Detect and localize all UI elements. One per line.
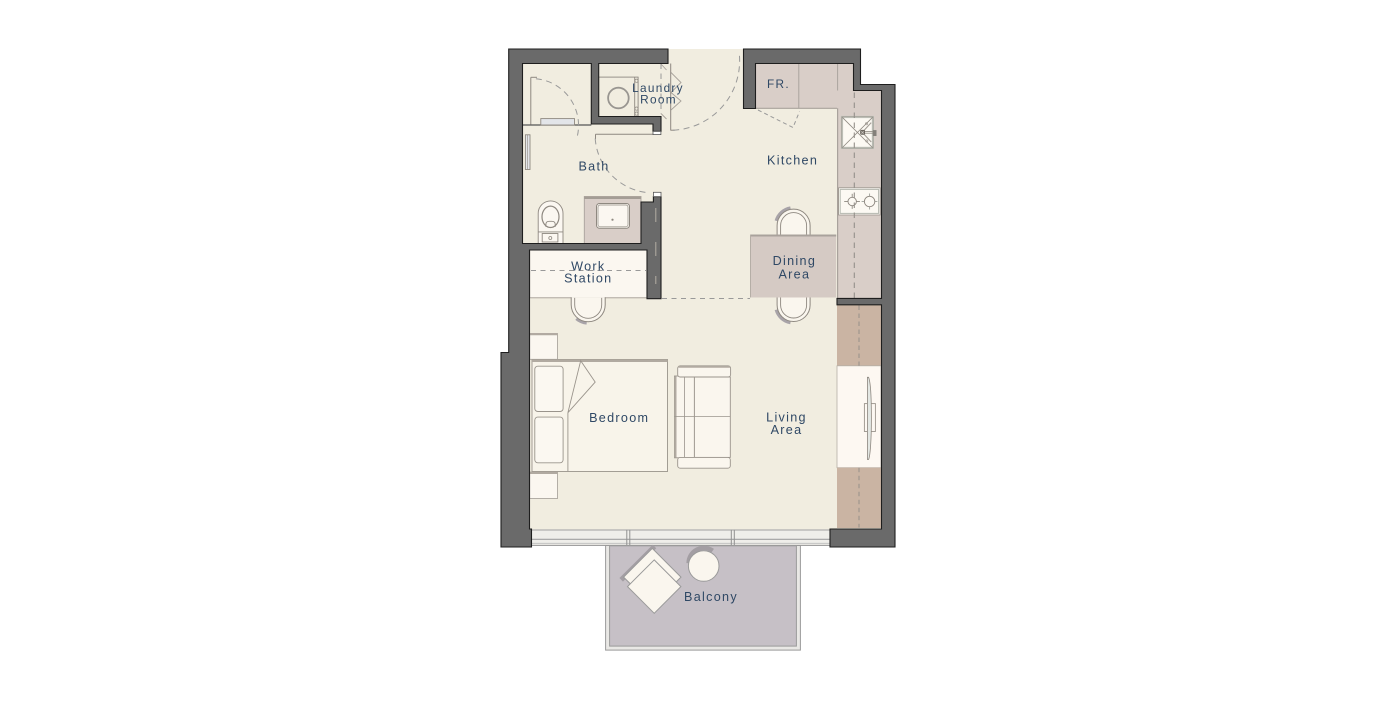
svg-text:Balcony: Balcony <box>684 590 738 604</box>
svg-text:Kitchen: Kitchen <box>767 154 818 168</box>
svg-text:Dining: Dining <box>773 254 817 268</box>
svg-text:Station: Station <box>564 272 612 286</box>
svg-text:Area: Area <box>771 423 803 437</box>
svg-text:Bath: Bath <box>578 160 609 174</box>
svg-text:Room: Room <box>640 93 677 107</box>
svg-text:Bedroom: Bedroom <box>589 411 649 425</box>
svg-text:Area: Area <box>778 267 810 281</box>
svg-text:FR.: FR. <box>767 77 790 91</box>
